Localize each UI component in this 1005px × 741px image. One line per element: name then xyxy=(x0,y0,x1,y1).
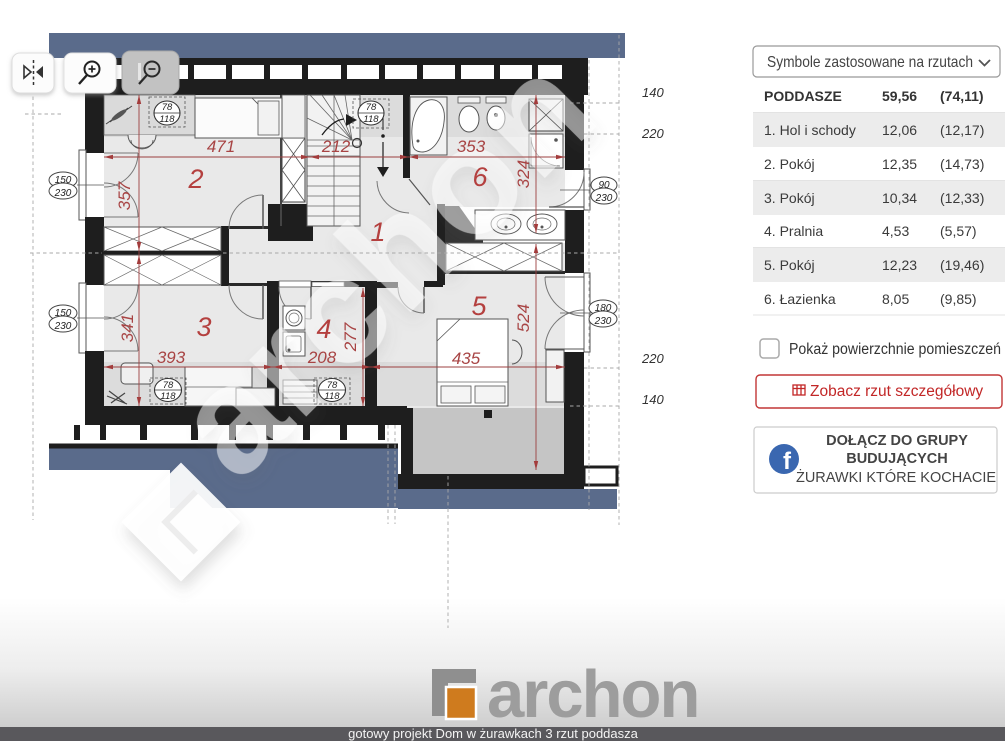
svg-text:12,35: 12,35 xyxy=(882,156,917,172)
svg-text:3. Pokój: 3. Pokój xyxy=(764,190,815,206)
svg-text:(12,33): (12,33) xyxy=(940,190,984,206)
svg-text:BUDUJĄCYCH: BUDUJĄCYCH xyxy=(846,451,948,467)
svg-text:212: 212 xyxy=(321,137,351,156)
svg-text:118: 118 xyxy=(159,114,175,125)
svg-text:524: 524 xyxy=(514,304,533,332)
svg-text:(9,85): (9,85) xyxy=(940,291,977,307)
svg-text:208: 208 xyxy=(307,348,337,367)
svg-text:78: 78 xyxy=(163,380,174,391)
svg-text:6: 6 xyxy=(472,162,488,192)
svg-text:230: 230 xyxy=(595,193,613,204)
svg-text:5. Pokój: 5. Pokój xyxy=(764,257,815,273)
svg-text:1. Hol i schody: 1. Hol i schody xyxy=(764,122,856,138)
svg-text:PODDASZE: PODDASZE xyxy=(764,88,842,104)
svg-text:4: 4 xyxy=(316,314,331,344)
svg-text:4. Pralnia: 4. Pralnia xyxy=(764,223,823,239)
svg-text:gotowy projekt Dom w żurawkach: gotowy projekt Dom w żurawkach 3 rzut po… xyxy=(348,726,639,741)
svg-text:140: 140 xyxy=(642,85,664,100)
svg-text:118: 118 xyxy=(160,391,176,402)
svg-text:(74,11): (74,11) xyxy=(940,88,984,104)
svg-text:Pokaż powierzchnie pomieszczeń: Pokaż powierzchnie pomieszczeń xyxy=(789,341,1001,358)
svg-text:f: f xyxy=(783,448,792,475)
svg-text:8,05: 8,05 xyxy=(882,291,909,307)
svg-text:Zobacz rzut szczegółowy: Zobacz rzut szczegółowy xyxy=(810,383,983,400)
svg-text:(14,73): (14,73) xyxy=(940,156,984,172)
svg-text:140: 140 xyxy=(642,392,664,407)
svg-text:59,56: 59,56 xyxy=(882,88,917,104)
svg-text:471: 471 xyxy=(207,137,235,156)
svg-text:2. Pokój: 2. Pokój xyxy=(764,156,815,172)
svg-text:archon: archon xyxy=(487,657,698,732)
svg-text:118: 118 xyxy=(324,391,340,402)
svg-text:(19,46): (19,46) xyxy=(940,257,984,273)
svg-text:5: 5 xyxy=(471,291,487,321)
svg-text:220: 220 xyxy=(641,126,664,141)
svg-text:353: 353 xyxy=(457,137,486,156)
svg-text:6. Łazienka: 6. Łazienka xyxy=(764,291,836,307)
svg-text:230: 230 xyxy=(54,321,72,332)
svg-text:78: 78 xyxy=(327,380,338,391)
svg-text:90: 90 xyxy=(598,180,610,191)
svg-text:393: 393 xyxy=(157,348,186,367)
svg-text:341: 341 xyxy=(118,314,137,342)
svg-text:220: 220 xyxy=(641,351,664,366)
svg-text:230: 230 xyxy=(594,316,612,327)
svg-text:12,23: 12,23 xyxy=(882,257,917,273)
svg-text:4,53: 4,53 xyxy=(882,223,909,239)
svg-text:324: 324 xyxy=(514,160,533,188)
svg-text:230: 230 xyxy=(54,188,72,199)
svg-text:2: 2 xyxy=(187,164,203,194)
svg-text:118: 118 xyxy=(363,114,379,125)
svg-text:435: 435 xyxy=(452,349,481,368)
svg-text:(12,17): (12,17) xyxy=(940,122,984,138)
svg-text:1: 1 xyxy=(370,217,385,247)
svg-text:357: 357 xyxy=(115,181,134,210)
svg-text:3: 3 xyxy=(196,312,211,342)
svg-text:150: 150 xyxy=(55,175,72,186)
svg-text:78: 78 xyxy=(366,102,377,113)
svg-text:12,06: 12,06 xyxy=(882,122,917,138)
svg-text:277: 277 xyxy=(341,322,360,352)
svg-text:150: 150 xyxy=(55,308,72,319)
svg-text:ŻURAWKI KTÓRE KOCHACIE: ŻURAWKI KTÓRE KOCHACIE xyxy=(796,468,996,486)
svg-text:10,34: 10,34 xyxy=(882,190,917,206)
svg-text:78: 78 xyxy=(162,102,173,113)
svg-text:DOŁĄCZ DO GRUPY: DOŁĄCZ DO GRUPY xyxy=(826,433,968,449)
svg-text:180: 180 xyxy=(595,303,612,314)
svg-text:(5,57): (5,57) xyxy=(940,223,977,239)
svg-text:Symbole zastosowane na rzutach: Symbole zastosowane na rzutach xyxy=(767,54,973,71)
